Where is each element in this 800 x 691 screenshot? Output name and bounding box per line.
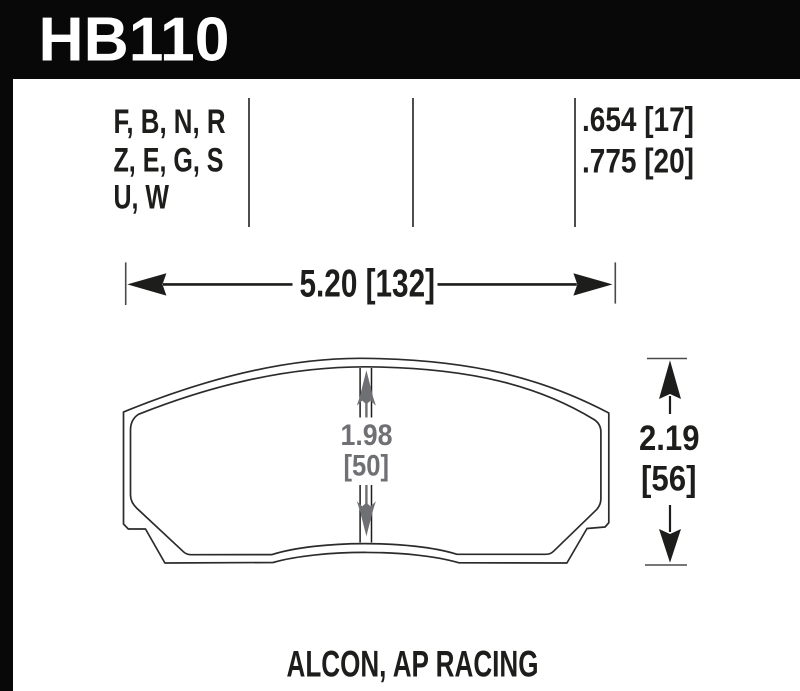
svg-text:2.19: 2.19 (639, 419, 700, 458)
svg-text:ALCON, AP RACING: ALCON, AP RACING (287, 643, 539, 685)
svg-text:[50]: [50] (344, 449, 390, 482)
svg-text:Z, E, G, S: Z, E, G, S (114, 142, 224, 180)
svg-text:U, W: U, W (114, 178, 170, 216)
svg-text:1.98: 1.98 (341, 419, 393, 452)
svg-text:HB110: HB110 (39, 5, 230, 75)
svg-text:F, B, N, R: F, B, N, R (114, 103, 226, 141)
svg-text:5.20 [132]: 5.20 [132] (300, 263, 436, 306)
svg-text:[56]: [56] (641, 459, 697, 498)
svg-text:.775 [20]: .775 [20] (582, 143, 694, 181)
svg-text:.654 [17]: .654 [17] (582, 101, 694, 139)
